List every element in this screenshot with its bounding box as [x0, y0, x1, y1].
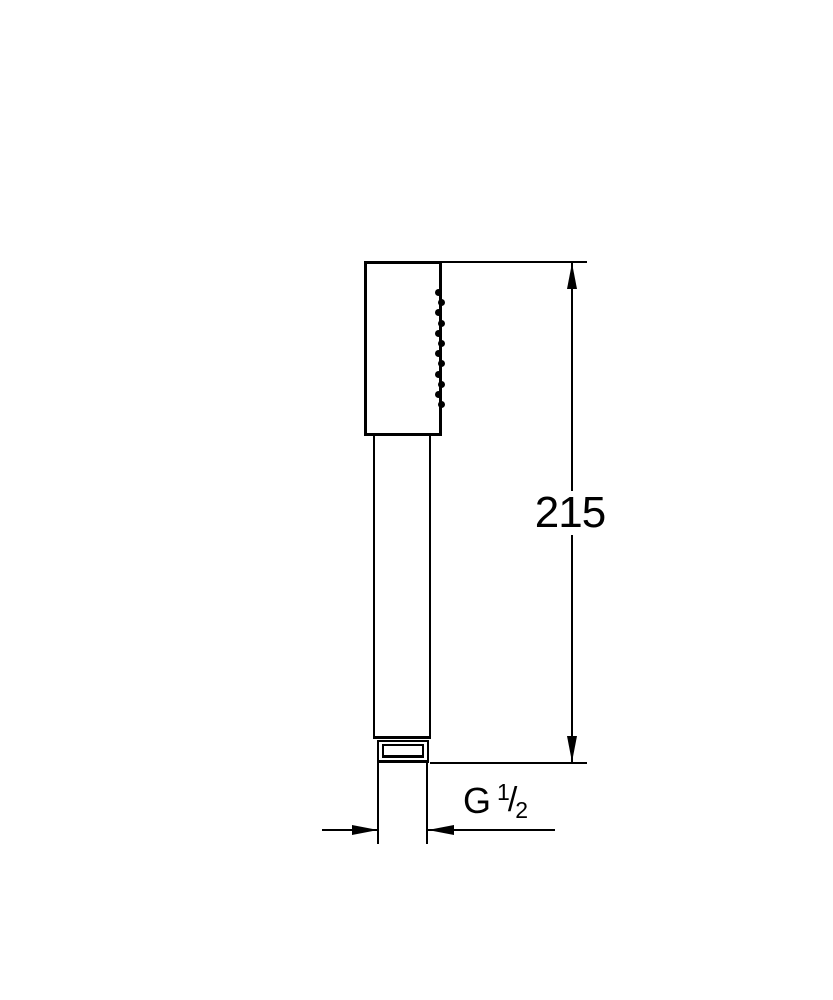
thread-label-denominator: 2 [515, 797, 528, 823]
connector-nut-knurl [382, 744, 424, 758]
height-dim-arrow-up-icon [567, 263, 577, 289]
drawing-canvas: 215 G1/2 [0, 0, 833, 1000]
thread-dim-arrow-right-icon [352, 825, 378, 835]
height-dim-extension-line-bottom [430, 762, 587, 764]
nozzle-dot-icon [435, 350, 442, 357]
thread-dim-arrow-left-icon [428, 825, 454, 835]
hose-connection-stub [377, 763, 428, 844]
height-dimension-label: 215 [530, 491, 610, 535]
nozzle-dot-icon [435, 371, 442, 378]
nozzle-dots-column [435, 289, 445, 409]
height-dim-arrow-down-icon [567, 736, 577, 762]
nozzle-dot-icon [435, 289, 442, 296]
nozzle-dot-icon [438, 381, 445, 388]
nozzle-dot-icon [435, 330, 442, 337]
nozzle-dot-icon [438, 320, 445, 327]
nozzle-dot-icon [438, 340, 445, 347]
connector-nut [377, 740, 429, 763]
nozzle-dot-icon [438, 299, 445, 306]
nozzle-dot-icon [435, 391, 442, 398]
thread-label-prefix: G [463, 780, 491, 821]
nozzle-dot-icon [438, 360, 445, 367]
height-dim-extension-line-top [442, 261, 587, 263]
shower-handle [373, 436, 431, 739]
nozzle-dot-icon [435, 309, 442, 316]
shower-head-body [364, 261, 442, 436]
thread-dimension-label: G1/2 [463, 783, 528, 819]
nozzle-dot-icon [438, 401, 445, 408]
